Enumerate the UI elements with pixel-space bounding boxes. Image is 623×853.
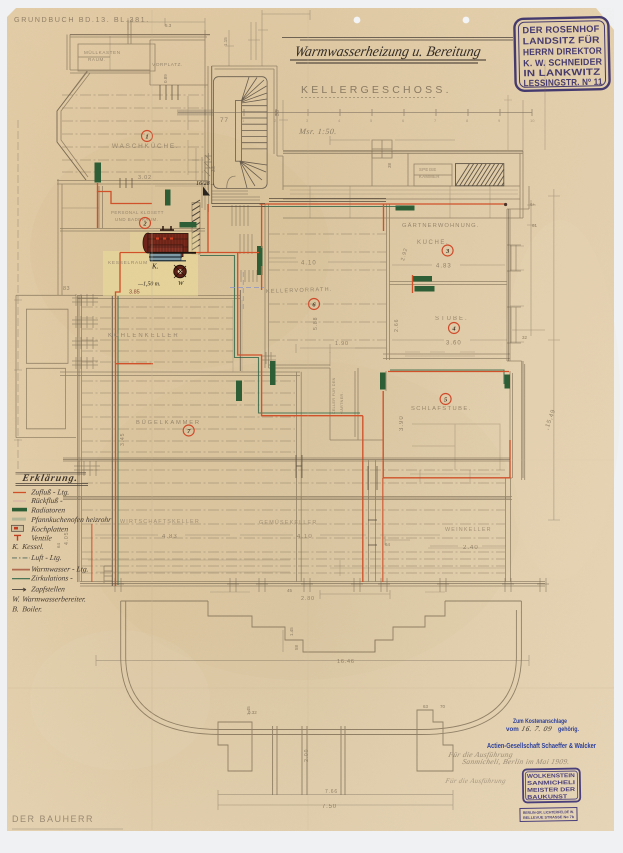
svg-text:Für die Ausführung: Für die Ausführung (444, 777, 507, 785)
svg-text:WOLKENSTEIN: WOLKENSTEIN (527, 773, 575, 780)
svg-text:WASCHKÜCHE.: WASCHKÜCHE. (112, 142, 180, 150)
svg-text:Kessel.: Kessel. (21, 542, 45, 551)
svg-text:4.83: 4.83 (162, 534, 178, 540)
svg-text:1.45: 1.45 (289, 627, 294, 636)
svg-text:Kochplatten: Kochplatten (30, 524, 69, 533)
svg-text:61: 61 (532, 223, 538, 228)
svg-text:HERRN DIREKTOR: HERRN DIREKTOR (523, 46, 602, 58)
svg-text:SANMICHELI: SANMICHELI (527, 780, 576, 787)
svg-text:64: 64 (385, 542, 391, 547)
svg-text:B.: B. (12, 605, 20, 614)
svg-text:Erklärung.: Erklärung. (20, 473, 79, 484)
svg-text:Rückfluß -: Rückfluß - (30, 496, 64, 505)
svg-text:Zirkulations -: Zirkulations - (31, 574, 74, 583)
svg-text:PERSONAL KLOSETT: PERSONAL KLOSETT (111, 210, 164, 215)
svg-text:DER BAUHERR: DER BAUHERR (12, 814, 94, 824)
svg-text:Msr. 1:50.: Msr. 1:50. (298, 127, 337, 136)
svg-text:K.: K. (11, 542, 20, 551)
svg-text:DER ROSENHOF: DER ROSENHOF (522, 24, 599, 36)
svg-text:Warmwasser - Ltg.: Warmwasser - Ltg. (31, 565, 89, 574)
svg-text:LANDSITZ FÜR: LANDSITZ FÜR (523, 35, 600, 47)
svg-text:4.05: 4.05 (64, 532, 70, 545)
svg-text:RAUM.: RAUM. (88, 57, 106, 62)
svg-text:16. 7. 09: 16. 7. 09 (521, 724, 554, 733)
svg-text:STUBE.: STUBE. (435, 316, 469, 322)
svg-text:GRUNDBUCH BD.13. BL.381.: GRUNDBUCH BD.13. BL.381. (14, 15, 150, 24)
svg-text:10: 10 (530, 118, 535, 123)
svg-text:63: 63 (423, 704, 429, 709)
svg-text:KESSELRAUM: KESSELRAUM (108, 260, 148, 266)
svg-text:KAMMER: KAMMER (419, 174, 440, 179)
svg-text:GÄRTNER.: GÄRTNER. (340, 392, 344, 414)
svg-text:Warmwasserbereiter.: Warmwasserbereiter. (22, 595, 87, 604)
svg-text:VORPLATZ.: VORPLATZ. (152, 62, 183, 68)
svg-text:3.90: 3.90 (399, 415, 405, 431)
svg-text:1.90: 1.90 (335, 341, 349, 347)
svg-text:58: 58 (294, 644, 299, 650)
svg-text:4.10: 4.10 (297, 534, 313, 540)
svg-text:2.66: 2.66 (394, 319, 400, 332)
svg-text:Sanmicheli, Berlin im Mai 1909: Sanmicheli, Berlin im Mai 1909. (462, 757, 571, 766)
svg-text:MEISTER DER: MEISTER DER (527, 787, 575, 794)
svg-text:45: 45 (287, 588, 293, 593)
svg-text:KOHLENKELLER: KOHLENKELLER (108, 333, 180, 339)
svg-text:3.45: 3.45 (120, 433, 126, 446)
svg-text:Pfannkuchenofen heizrohr: Pfannkuchenofen heizrohr (30, 515, 112, 524)
svg-text:6+: 6+ (530, 202, 536, 207)
svg-text:Radiatoren: Radiatoren (30, 505, 66, 514)
svg-text:5.3: 5.3 (165, 23, 172, 28)
svg-text:KÜCHE.: KÜCHE. (417, 239, 449, 246)
svg-text:—1,50 m.: —1,50 m. (137, 282, 160, 288)
svg-text:0.89: 0.89 (163, 74, 168, 83)
svg-text:LESSINGSTR. Nº 11: LESSINGSTR. Nº 11 (524, 77, 603, 89)
svg-text:1: 1 (145, 133, 148, 140)
svg-text:4.83: 4.83 (436, 264, 452, 270)
svg-text:2.00: 2.00 (304, 749, 310, 762)
svg-text:38: 38 (387, 162, 392, 168)
svg-text:7.66: 7.66 (325, 789, 338, 795)
svg-text:KELLERGESCHOSS.: KELLERGESCHOSS. (301, 84, 452, 96)
svg-text:MÜLLKASTEN: MÜLLKASTEN (84, 49, 121, 55)
svg-text:Zapfstellen: Zapfstellen (31, 585, 66, 594)
svg-text:GEMÜSEKELLER: GEMÜSEKELLER (259, 519, 317, 526)
svg-text:Luft - Ltg.: Luft - Ltg. (30, 553, 63, 562)
svg-text:SCHLAFSTUBE.: SCHLAFSTUBE. (411, 406, 472, 412)
svg-text:16.46: 16.46 (337, 659, 355, 665)
svg-text:vom: vom (506, 726, 519, 733)
svg-text:gehörig.: gehörig. (558, 726, 579, 733)
svg-text:Boiler.: Boiler. (22, 605, 43, 614)
svg-text:W: W (178, 280, 184, 287)
svg-text:KELLER FÜR DEN: KELLER FÜR DEN (332, 377, 336, 414)
svg-text:3: 3 (445, 248, 450, 255)
svg-text:W.: W. (12, 595, 21, 604)
svg-text:Warmwasserheizung u. Bereitung: Warmwasserheizung u. Bereitung (293, 44, 482, 60)
svg-text:3.85: 3.85 (129, 290, 140, 296)
svg-text:WIRTSCHAFTSKELLER: WIRTSCHAFTSKELLER (120, 519, 200, 525)
svg-text:Actien-Gesellschaft Schaeffer: Actien-Gesellschaft Schaeffer & Walcker (487, 741, 596, 750)
svg-text:64: 64 (56, 542, 61, 548)
svg-text:BAUKUNST: BAUKUNST (527, 794, 568, 801)
svg-text:70: 70 (440, 704, 446, 709)
svg-text:GÄRTNERWOHNUNG.: GÄRTNERWOHNUNG. (402, 222, 479, 229)
svg-text:83: 83 (63, 286, 70, 292)
svg-text:3.60: 3.60 (446, 341, 462, 347)
svg-text:3.02: 3.02 (138, 175, 152, 181)
svg-text:32: 32 (522, 335, 528, 340)
svg-text:77: 77 (220, 117, 229, 124)
svg-text:4.10: 4.10 (301, 261, 317, 267)
svg-text:WEINKELLER: WEINKELLER (445, 527, 492, 533)
svg-text:5.88: 5.88 (313, 317, 319, 330)
svg-text:0.32: 0.32 (248, 710, 257, 715)
svg-text:1.15: 1.15 (223, 37, 228, 46)
svg-text:SPEISE: SPEISE (419, 167, 437, 172)
